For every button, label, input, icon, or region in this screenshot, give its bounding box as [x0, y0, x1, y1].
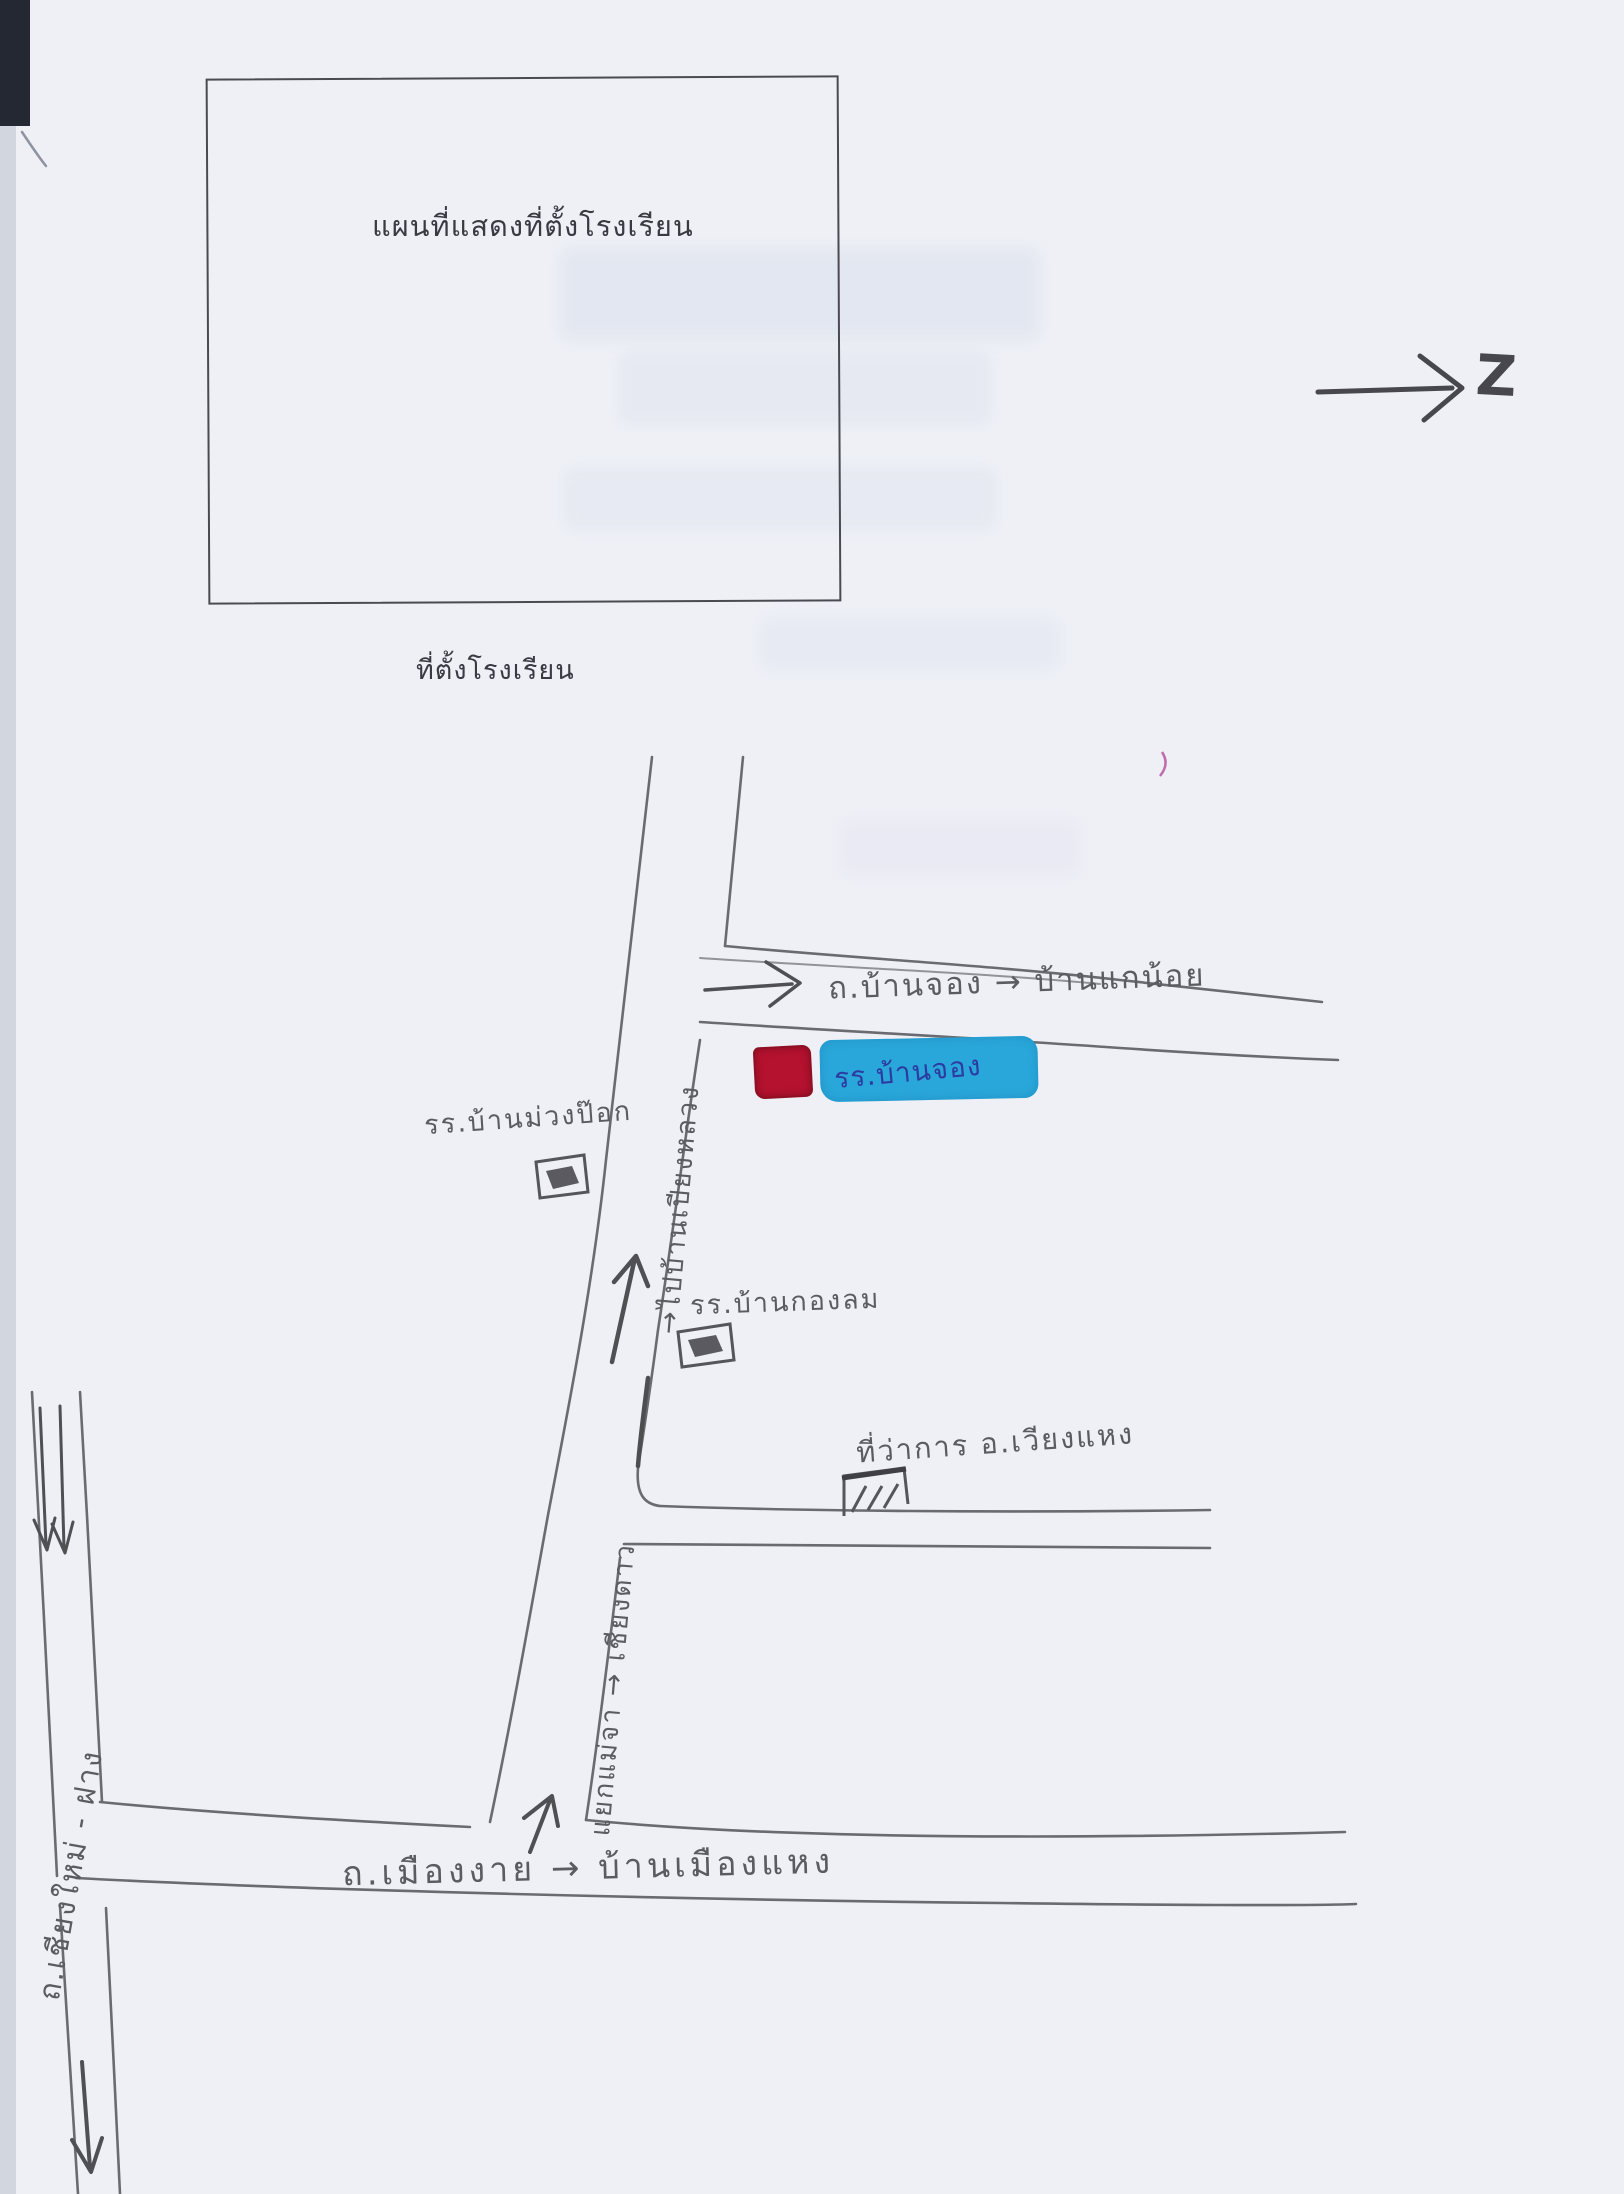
stray-pen-mark	[1160, 752, 1166, 776]
school-kong-lom-label: รร.บ้านกองลม	[689, 1277, 881, 1327]
house-icon-muang-pok	[536, 1155, 588, 1198]
left-road-right-line-upper	[80, 1392, 102, 1802]
bottom-road-top-left	[100, 1802, 470, 1827]
bottom-road-top-right	[586, 1820, 1345, 1836]
middle-road-bottom-line	[624, 1544, 1210, 1548]
left-road-right-line-lower	[106, 1908, 120, 2194]
left-road-left-line-upper	[32, 1392, 57, 1876]
scanned-map-page: แผนที่แสดงที่ตั้งโรงเรียน ที่ตั้งโรงเรีย…	[0, 0, 1624, 2194]
school-name-highlight: รร.บ้านจอง	[819, 1036, 1038, 1103]
vertical-road-right-line-upper	[725, 757, 743, 946]
north-arrow	[1318, 356, 1462, 420]
vertical-road-overdraw	[638, 1378, 648, 1466]
district-office-icon	[842, 1468, 908, 1516]
middle-road-top-line	[660, 1506, 1210, 1511]
school-location-marker	[753, 1045, 814, 1100]
top-road-direction-arrow	[705, 962, 800, 1006]
left-road-down-arrow-2	[52, 1406, 73, 1553]
vertical-road-up-arrow	[612, 1256, 648, 1362]
school-name-ink-label: รร.บ้านจอง	[832, 1044, 983, 1101]
paper-corner-tick	[22, 132, 46, 166]
